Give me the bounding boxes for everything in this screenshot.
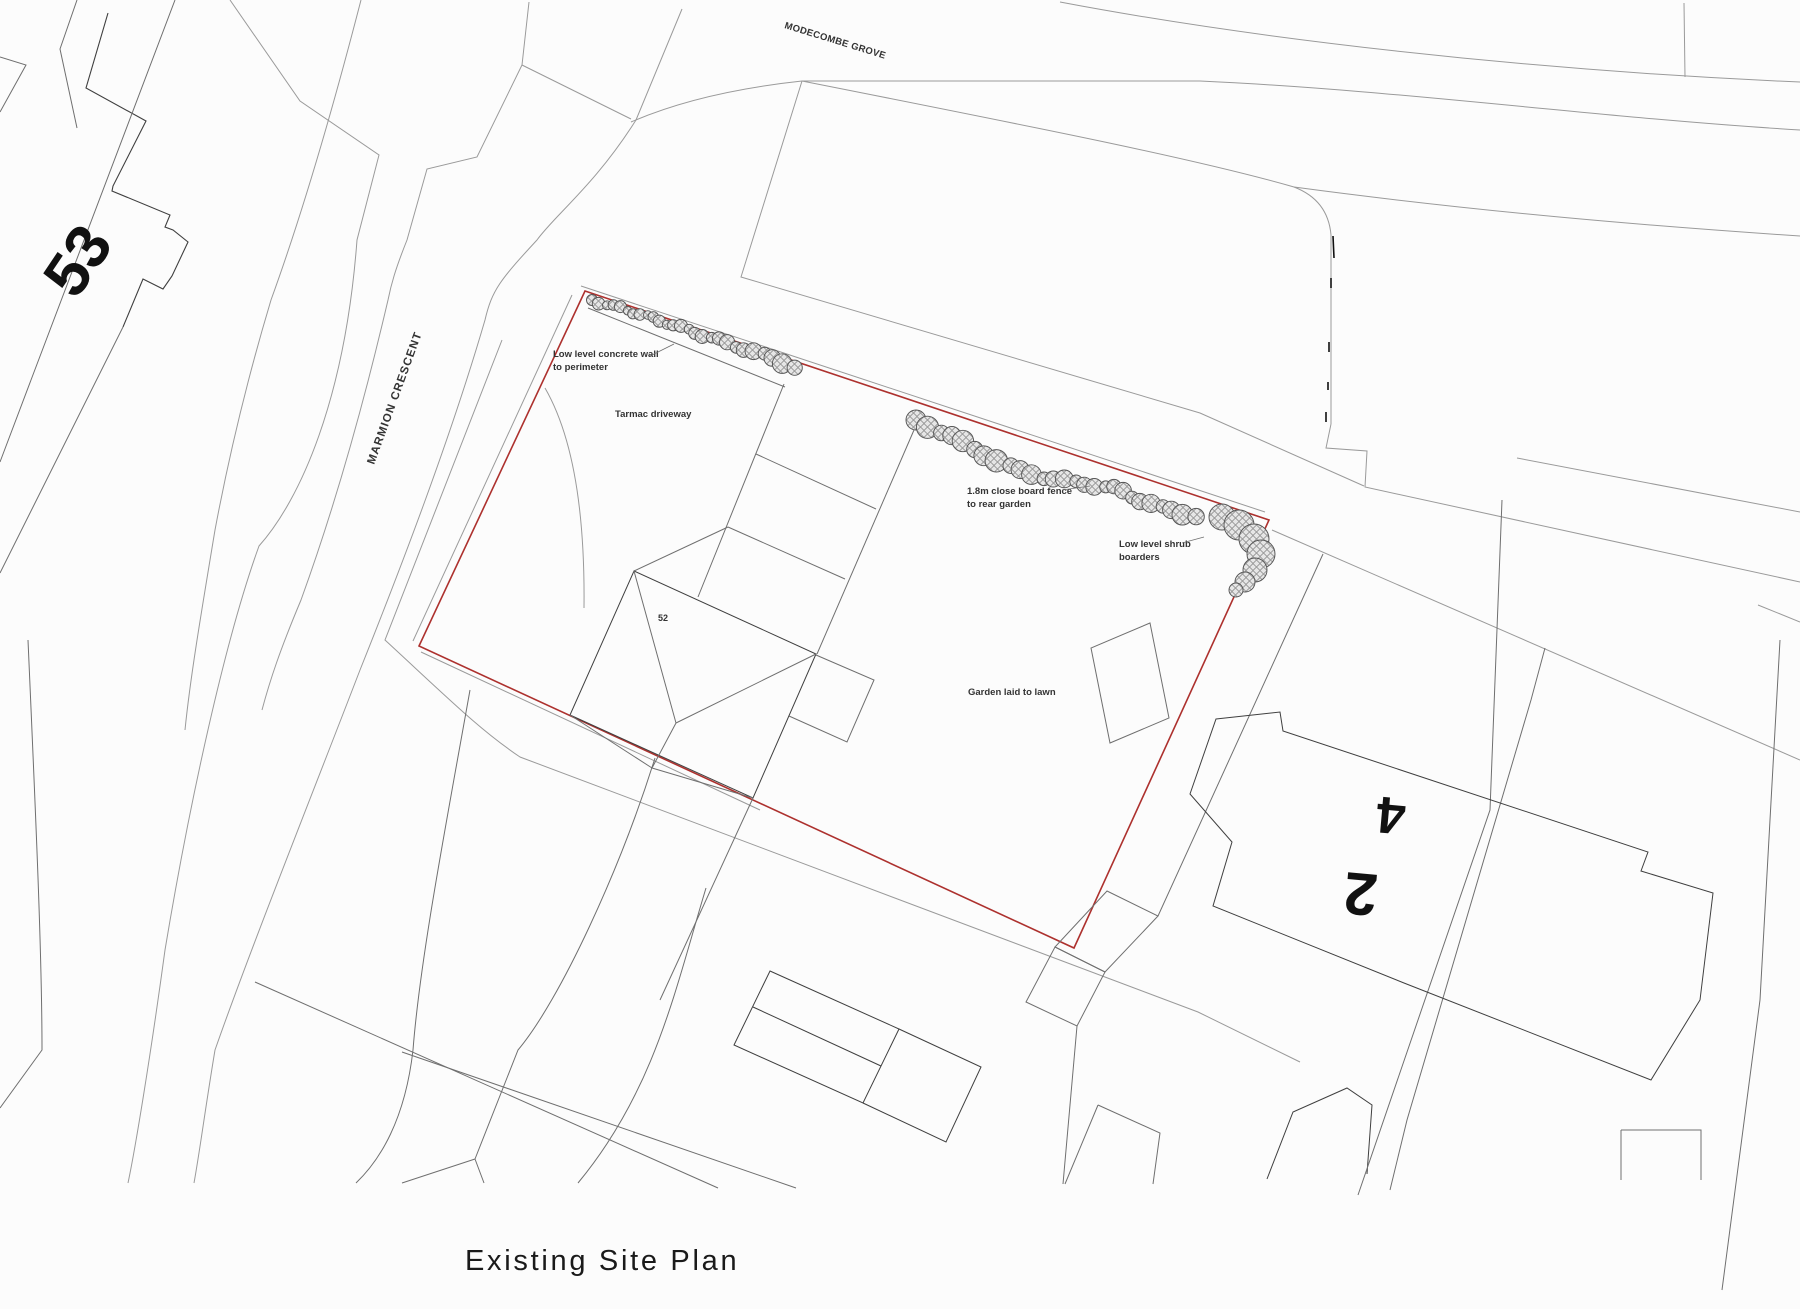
svg-text:1.8m close board fence: 1.8m close board fence xyxy=(967,486,1072,497)
svg-text:Tarmac driveway: Tarmac driveway xyxy=(615,409,692,420)
svg-text:52: 52 xyxy=(658,613,668,623)
svg-text:boarders: boarders xyxy=(1119,552,1160,563)
svg-text:Low level shrub: Low level shrub xyxy=(1119,539,1191,550)
svg-text:to perimeter: to perimeter xyxy=(553,362,608,373)
svg-text:Garden laid to lawn: Garden laid to lawn xyxy=(968,687,1056,698)
svg-text:Existing Site Plan: Existing Site Plan xyxy=(465,1245,739,1277)
svg-text:Low level concrete wall: Low level concrete wall xyxy=(553,349,659,360)
svg-text:2: 2 xyxy=(1341,859,1380,929)
svg-text:to rear garden: to rear garden xyxy=(967,499,1031,510)
svg-text:4: 4 xyxy=(1374,785,1408,845)
